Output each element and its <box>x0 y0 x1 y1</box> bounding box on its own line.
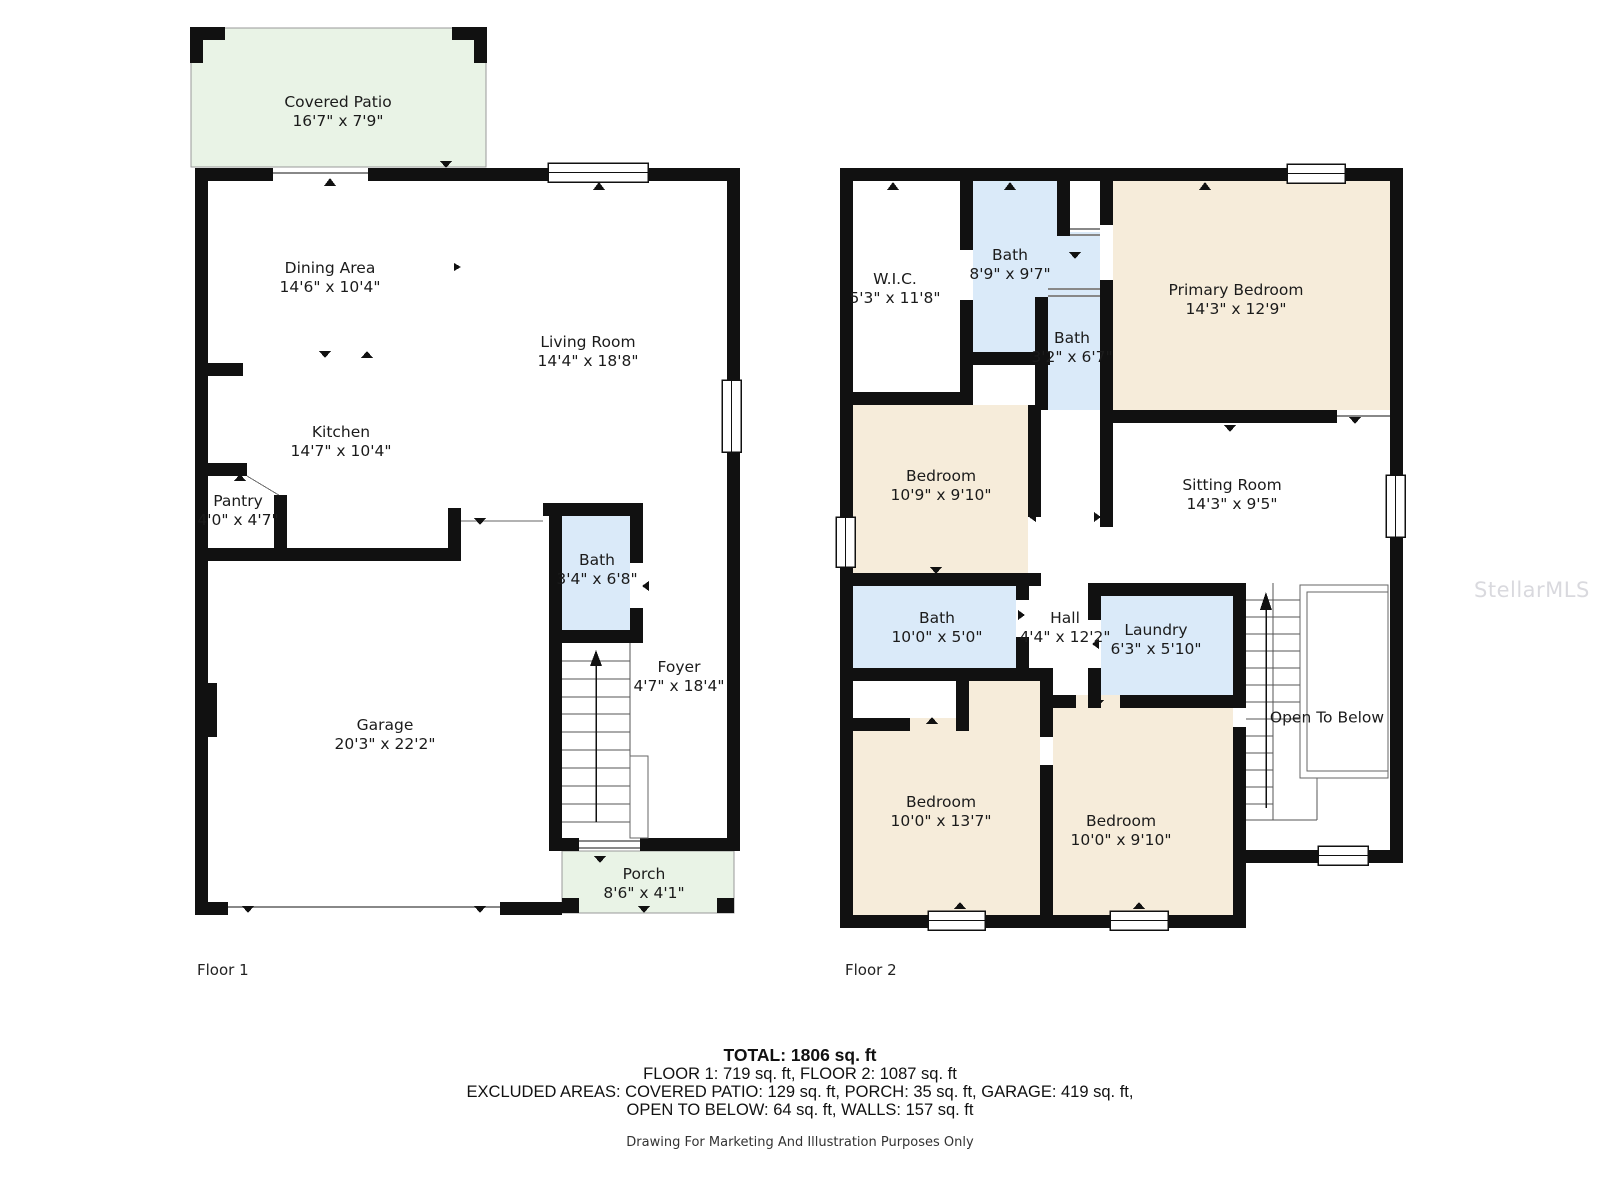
room-label-dining-area: Dining Area 14'6" x 10'4" <box>280 259 381 297</box>
room-label-pantry: Pantry 4'0" x 4'7" <box>197 492 278 530</box>
room-name: Hall <box>1019 609 1110 628</box>
area-summary: TOTAL: 1806 sq. ft FLOOR 1: 719 sq. ft, … <box>0 1046 1600 1150</box>
room-dims: 14'3" x 9'5" <box>1182 495 1281 514</box>
stairs-up-arrow <box>590 650 602 666</box>
room-dims: 5'3" x 11'8" <box>849 289 940 308</box>
floor1-interior-walls <box>195 363 740 851</box>
porch-stub-right <box>717 898 734 913</box>
room-name: Dining Area <box>280 259 381 278</box>
room-dims: 3'4" x 6'8" <box>556 570 637 589</box>
floor2-caption: Floor 2 <box>845 961 897 979</box>
room-name: Bedroom <box>891 467 992 486</box>
bedroom-bottommid-area <box>1053 695 1233 915</box>
room-label-bedroom-bottomleft: Bedroom 10'0" x 13'7" <box>891 793 992 831</box>
room-name: Bedroom <box>1071 812 1172 831</box>
room-dims: 14'4" x 18'8" <box>538 352 639 371</box>
bedroom-closet-area <box>853 680 956 718</box>
room-label-laundry: Laundry 6'3" x 5'10" <box>1110 621 1201 659</box>
room-name: Bedroom <box>891 793 992 812</box>
room-name: Foyer <box>633 658 724 677</box>
room-name: Bath <box>556 551 637 570</box>
floor-plan-drawing <box>0 0 1600 1200</box>
room-dims: 10'0" x 5'0" <box>891 628 982 647</box>
room-name: Porch <box>603 865 684 884</box>
room-dims: 14'3" x 12'9" <box>1169 300 1304 319</box>
room-dims: 16'7" x 7'9" <box>284 112 391 131</box>
room-dims: 8'9" x 9'7" <box>969 265 1050 284</box>
summary-disclaimer: Drawing For Marketing And Illustration P… <box>0 1135 1600 1150</box>
open-to-below-outline <box>1300 585 1388 790</box>
room-dims: 4'7" x 18'4" <box>633 677 724 696</box>
summary-floors: FLOOR 1: 719 sq. ft, FLOOR 2: 1087 sq. f… <box>0 1065 1600 1083</box>
room-dims: 8'6" x 4'1" <box>603 884 684 903</box>
room-label-bath-mid: Bath 10'0" x 5'0" <box>891 609 982 647</box>
room-label-living-room: Living Room 14'4" x 18'8" <box>538 333 639 371</box>
room-dims: 3'2" x 6'7" <box>1031 348 1112 367</box>
room-dims: 10'0" x 9'10" <box>1071 831 1172 850</box>
floor1-caption: Floor 1 <box>197 961 249 979</box>
room-label-bath-upper: Bath 8'9" x 9'7" <box>969 246 1050 284</box>
floor1-windows <box>548 163 741 452</box>
room-name: Covered Patio <box>284 93 391 112</box>
room-dims: 10'0" x 13'7" <box>891 812 992 831</box>
room-label-bath-small: Bath 3'2" x 6'7" <box>1031 329 1112 367</box>
room-name: Bath <box>891 609 982 628</box>
room-label-bath1: Bath 3'4" x 6'8" <box>556 551 637 589</box>
room-label-bedroom-bottommid: Bedroom 10'0" x 9'10" <box>1071 812 1172 850</box>
room-name: W.I.C. <box>849 270 940 289</box>
floor2-stairs <box>1246 583 1317 820</box>
room-name: Bath <box>1031 329 1112 348</box>
stellar-mls-watermark: StellarMLS <box>1474 578 1590 602</box>
room-dims: 4'4" x 12'2" <box>1019 628 1110 647</box>
room-label-garage: Garage 20'3" x 22'2" <box>335 716 436 754</box>
room-label-sitting-room: Sitting Room 14'3" x 9'5" <box>1182 476 1281 514</box>
room-dims: 4'0" x 4'7" <box>197 511 278 530</box>
room-dims: 20'3" x 22'2" <box>335 735 436 754</box>
room-name: Laundry <box>1110 621 1201 640</box>
floor1-plan <box>190 27 741 915</box>
room-label-kitchen: Kitchen 14'7" x 10'4" <box>291 423 392 461</box>
room-name: Sitting Room <box>1182 476 1281 495</box>
summary-total: TOTAL: 1806 sq. ft <box>0 1046 1600 1065</box>
porch-stub-left <box>562 898 579 913</box>
floor-plan-page: Covered Patio 16'7" x 7'9" Dining Area 1… <box>0 0 1600 1200</box>
room-dims: 14'6" x 10'4" <box>280 278 381 297</box>
stairs-up-arrow <box>1260 592 1272 610</box>
summary-excluded: EXCLUDED AREAS: COVERED PATIO: 129 sq. f… <box>0 1083 1600 1101</box>
room-label-primary-bedroom: Primary Bedroom 14'3" x 12'9" <box>1169 281 1304 319</box>
room-name: Bath <box>969 246 1050 265</box>
room-name: Living Room <box>538 333 639 352</box>
room-label-wic: W.I.C. 5'3" x 11'8" <box>849 270 940 308</box>
room-label-foyer: Foyer 4'7" x 18'4" <box>633 658 724 696</box>
room-label-hall: Hall 4'4" x 12'2" <box>1019 609 1110 647</box>
room-label-porch: Porch 8'6" x 4'1" <box>603 865 684 903</box>
summary-excluded2: OPEN TO BELOW: 64 sq. ft, WALLS: 157 sq.… <box>0 1101 1600 1119</box>
room-dims: 6'3" x 5'10" <box>1110 640 1201 659</box>
room-name: Garage <box>335 716 436 735</box>
room-label-bedroom-mid: Bedroom 10'9" x 9'10" <box>891 467 992 505</box>
room-name: Kitchen <box>291 423 392 442</box>
room-name: Open To Below <box>1270 709 1384 728</box>
room-name: Primary Bedroom <box>1169 281 1304 300</box>
room-label-open-to-below: Open To Below <box>1270 709 1384 728</box>
room-name: Pantry <box>197 492 278 511</box>
room-dims: 14'7" x 10'4" <box>291 442 392 461</box>
room-label-covered-patio: Covered Patio 16'7" x 7'9" <box>284 93 391 131</box>
room-dims: 10'9" x 9'10" <box>891 486 992 505</box>
